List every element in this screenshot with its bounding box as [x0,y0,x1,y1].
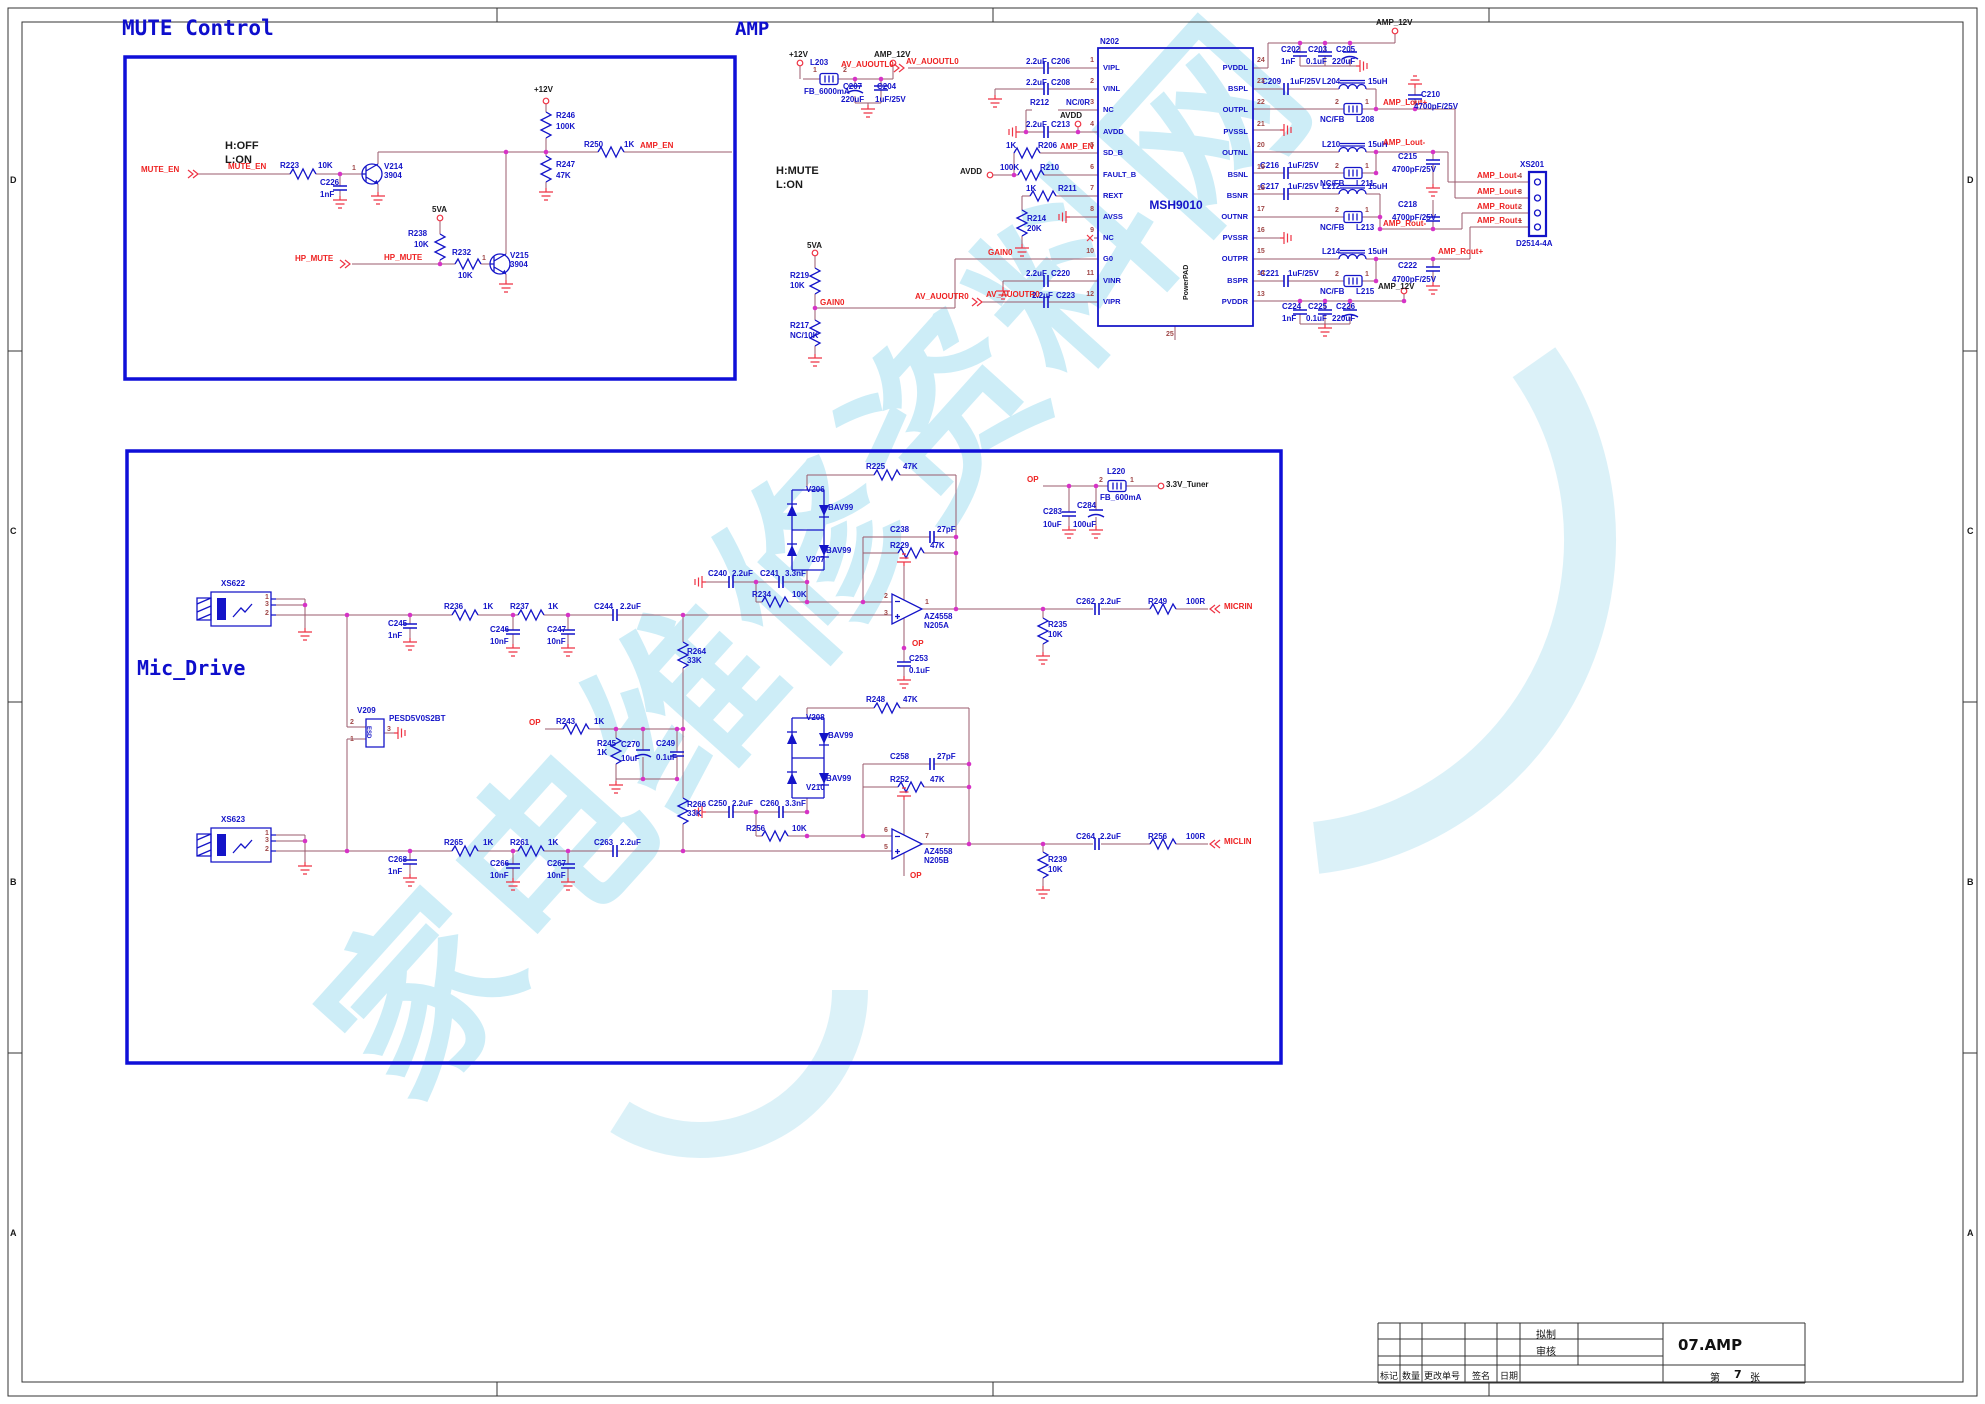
label-c246: C246 [490,626,509,634]
chip-pin-g0: G0 [1103,255,1113,263]
label-ncfb: NC/FB [1320,288,1344,296]
label-r232: R232 [452,249,471,257]
label-r265: R265 [444,839,463,847]
label-3.3nf: 3.3nF [785,800,806,808]
label-c241: C241 [760,570,779,578]
label-47k: 47K [930,542,945,550]
label-bav99: BAV99 [826,547,851,555]
label-1k: 1K [483,603,493,611]
label-10k: 10K [318,162,333,170]
label-az4558: AZ4558 [924,848,952,856]
label-hp_mute: HP_MUTE [295,255,333,263]
label-amp_12v: AMP_12V [1376,19,1412,27]
label-c249: C249 [656,740,675,748]
chip-pin-vinl: VINL [1103,85,1120,93]
label-c202: C202 [1281,46,1300,54]
chip-pin-num-20: 20 [1257,142,1265,149]
zone-right-D: D [1967,176,1974,185]
mute-section-title: MUTE Control [122,16,274,40]
label-c263: C263 [594,839,613,847]
label-1: 1 [482,255,486,262]
label-3.3v_tuner: 3.3V_Tuner [1166,481,1209,489]
label-2.2uf: 2.2uF [1026,121,1047,129]
chip-pin-num-7: 7 [1074,185,1094,192]
label-c226: C226 [320,179,339,187]
chip-pin-num-14: 14 [1257,270,1265,277]
label-c220: C220 [1051,270,1070,278]
label-2: 2 [265,846,269,853]
label-2.2uf: 2.2uF [1026,58,1047,66]
label-10k: 10K [1048,866,1063,874]
chip-pin-num-17: 17 [1257,206,1265,213]
label-2: 2 [350,719,354,726]
chip-pin-avdd: AVDD [1103,128,1124,136]
schematic-sheet: 家电维修资料网 [0,0,1985,1404]
label-hp_mute: HP_MUTE [384,254,422,262]
title-block-sign-label: 签名 [1472,1369,1490,1382]
label-10nf: 10nF [547,872,566,880]
label-c245: C245 [388,620,407,628]
label-avdd: AVDD [960,168,982,176]
chip-pin-bspl: BSPL [1163,85,1248,93]
label-100r: 100R [1186,833,1205,841]
label-r214: R214 [1027,215,1046,223]
label-1k: 1K [1006,142,1016,150]
chip-pin-nc: NC [1103,106,1114,114]
title-block-doc-title: 07.AMP [1678,1336,1742,1354]
label-r217: R217 [790,322,809,330]
label-v214: V214 [384,163,403,171]
label-1uf25v: 1uF/25V [1288,270,1319,278]
chip-pin-num-3: 3 [1074,99,1094,106]
label-5va: 5VA [807,242,822,250]
label-2: 2 [1335,99,1339,106]
label-op: OP [912,640,924,648]
label-1: 1 [350,736,354,743]
label-av_auoutl0: AV_AUOUTL0 [841,61,894,69]
chip-pin-num-11: 11 [1074,270,1094,277]
label-2.2uf: 2.2uF [732,570,753,578]
chip-pin-num-1: 1 [1074,57,1094,64]
label-1k: 1K [594,718,604,726]
zone-left-C: C [10,527,17,536]
label-1nf: 1nF [320,191,334,199]
chip-pin-rext: REXT [1103,192,1123,200]
label-hmute: H:MUTE [776,166,819,177]
label-amp_12v: AMP_12V [1378,283,1414,291]
chip-pin-num-16: 16 [1257,227,1265,234]
label-2.2uf: 2.2uF [1100,833,1121,841]
label-220uf: 220uF [841,96,864,104]
zone-right-C: C [1967,527,1974,536]
label-47k: 47K [930,776,945,784]
label-1uf25v: 1uF/25V [1288,183,1319,191]
label-220uf: 220uF [1332,315,1355,323]
label-10k: 10K [458,272,473,280]
label-l210: L210 [1322,141,1340,149]
label-c224: C224 [1282,303,1301,311]
label-r239: R239 [1048,856,1067,864]
chip-pin-num-24: 24 [1257,57,1265,64]
zone-left-A: A [10,1229,17,1238]
label-1: 1 [1365,271,1369,278]
label-c270: C270 [621,741,640,749]
label-2: 2 [1099,477,1103,484]
label-7: 7 [925,833,929,840]
label-100uf: 100uF [1073,521,1096,529]
label-c258: C258 [890,753,909,761]
label-esd: ESD [365,726,371,738]
chip-pin-num-19: 19 [1257,164,1265,171]
label-10nf: 10nF [547,638,566,646]
label-az4558: AZ4558 [924,613,952,621]
label-r210: R210 [1040,164,1059,172]
title-block-date-label: 日期 [1500,1369,1518,1382]
label-47k: 47K [556,172,571,180]
label-5va: 5VA [432,206,447,214]
label-miclin: MICLIN [1224,838,1252,846]
label-r212: R212 [1030,99,1049,107]
title-block-change-label: 更改单号 [1424,1369,1460,1382]
label-0.1uf: 0.1uF [1306,315,1327,323]
label-v215: V215 [510,252,529,260]
label-r246: R246 [556,112,575,120]
label-0.1uf: 0.1uF [1306,58,1327,66]
label-r248: R248 [866,696,885,704]
label-33k: 33K [687,657,702,665]
title-block-draft-label: 拟制 [1536,1326,1556,1341]
label-c223: C223 [1056,292,1075,300]
label-27pf: 27pF [937,753,956,761]
label-amp_12v: AMP_12V [874,51,910,59]
label-33k: 33K [687,810,702,818]
chip-pin-avss: AVSS [1103,213,1123,221]
chip-pin-num-23: 23 [1257,78,1265,85]
xs201-part: D2514-4A [1516,240,1552,248]
label-gain0: GAIN0 [820,299,844,307]
label-fb_600ma: FB_600mA [1100,494,1141,502]
label-220uf: 220uF [1332,58,1355,66]
label-l203: L203 [810,59,828,67]
label-1uf25v: 1uF/25V [875,96,906,104]
chip-pin-outnr: OUTNR [1163,213,1248,221]
label-c284: C284 [1077,502,1096,510]
chip-pin-num-5: 5 [1074,142,1094,149]
label-l214: L214 [1322,248,1340,256]
zone-right-A: A [1967,1229,1974,1238]
label-c244: C244 [594,603,613,611]
title-block-sheet-number: 7 [1734,1368,1742,1381]
label-v209: V209 [357,707,376,715]
label-l213: L213 [1356,224,1374,232]
label-av_auoutl0: AV_AUOUTL0 [906,58,959,66]
label-c262: C262 [1076,598,1095,606]
label-v210: V210 [806,784,825,792]
label-op: OP [910,872,922,880]
zone-right-B: B [1967,878,1974,887]
label-mute_en: MUTE_EN [141,166,179,174]
chip-pin-fault_b: FAULT_B [1103,171,1136,179]
chip-pin-bsnr: BSNR [1163,192,1248,200]
label-1: 1 [1130,477,1134,484]
label-r256: R256 [746,825,765,833]
label-47k: 47K [903,463,918,471]
label-c253: C253 [909,655,928,663]
label-1nf: 1nF [388,868,402,876]
label-c206: C206 [1051,58,1070,66]
chip-pin-outpl: OUTPL [1163,106,1248,114]
label-2: 2 [1335,163,1339,170]
label-av_auoutr0: AV_AUOUTR0 [915,293,969,301]
label-v208: V208 [806,714,825,722]
label-2.2uf: 2.2uF [1032,292,1053,300]
label-1nf: 1nF [1282,315,1296,323]
label-2: 2 [1335,207,1339,214]
label-xs622: XS622 [221,580,245,588]
label-c215: C215 [1398,153,1417,161]
xs201-pin-3: 3 [1512,189,1522,196]
label-c222: C222 [1398,262,1417,270]
chip-ref: N202 [1100,38,1119,46]
label-100r: 100R [1186,598,1205,606]
label-0.1uf: 0.1uF [909,667,930,675]
label-r243: R243 [556,718,575,726]
label-l208: L208 [1356,116,1374,124]
label-r223: R223 [280,162,299,170]
chip-pin-sd_b: SD_B [1103,149,1123,157]
label-c240: C240 [708,570,727,578]
label-+12v: +12V [789,51,808,59]
chip-pin-bsnl: BSNL [1163,171,1248,179]
chip-pin-num-9: 9 [1074,227,1094,234]
label-l215: L215 [1356,288,1374,296]
label-1k: 1K [548,603,558,611]
title-block-sheet-prefix: 第 [1710,1369,1720,1384]
chip-pin-bspr: BSPR [1163,277,1248,285]
label-15uh: 15uH [1368,248,1388,256]
label-r250: R250 [584,141,603,149]
chip-pin-num-4: 4 [1074,121,1094,128]
chip-pin-num-18: 18 [1257,185,1265,192]
label-2: 2 [884,593,888,600]
label-c210: C210 [1421,91,1440,99]
label-10k: 10K [792,591,807,599]
xs201-pin-4: 4 [1512,173,1522,180]
xs201-pin-1: 1 [1512,218,1522,225]
label-c260: C260 [760,800,779,808]
label-3904: 3904 [510,261,528,269]
label-1: 1 [813,67,817,74]
label-4700pf25v: 4700pF/25V [1392,166,1436,174]
chip-pin-vipl: VIPL [1103,64,1120,72]
label-c266: C266 [490,860,509,868]
chip-pin-num-15: 15 [1257,248,1265,255]
chip-pin-pvssr: PVSSR [1163,234,1248,242]
label-lon: L:ON [776,180,803,191]
label-1k: 1K [483,839,493,847]
label-1: 1 [352,165,356,172]
label-v206: V206 [806,486,825,494]
chip-pin-vipr: VIPR [1103,298,1121,306]
label-100k: 100K [1000,164,1019,172]
label-3: 3 [265,837,269,844]
label-op: OP [1027,476,1039,484]
label-bav99: BAV99 [828,504,853,512]
label-avdd: AVDD [1060,112,1082,120]
label-r234: R234 [752,591,771,599]
label-10k: 10K [792,825,807,833]
label-r237: R237 [510,603,529,611]
label-r252: R252 [890,776,909,784]
label-l204: L204 [1322,78,1340,86]
label-1: 1 [1365,207,1369,214]
label-amp_lout-: AMP_Lout- [1383,139,1425,147]
label-0.1uf: 0.1uF [656,754,677,762]
label-r235: R235 [1048,621,1067,629]
label-2: 2 [1335,271,1339,278]
label-hoff: H:OFF [225,141,259,152]
chip-pin-num-21: 21 [1257,121,1265,128]
label-1uf25v: 1uF/25V [1288,162,1319,170]
label-1k: 1K [548,839,558,847]
label-l212: L212 [1322,183,1340,191]
label-2.2uf: 2.2uF [620,603,641,611]
chip-pin-nc: NC [1103,234,1114,242]
label-mute_en: MUTE_EN [228,163,266,171]
label-1nf: 1nF [388,632,402,640]
label-20k: 20K [1027,225,1042,233]
label-c204: C204 [877,83,896,91]
label-10k: 10K [414,241,429,249]
label-nc10k: NC/10K [790,332,818,340]
title-block-qty-label: 数量 [1402,1369,1420,1382]
label-c247: C247 [547,626,566,634]
label-ncfb: NC/FB [1320,224,1344,232]
label-1: 1 [265,830,269,837]
labels-layer: H:OFFL:ONMUTE_ENMUTE_ENR22310KC2261nFV21… [0,0,1985,1404]
label-27pf: 27pF [937,526,956,534]
label-2.2uf: 2.2uF [732,800,753,808]
xs201-pin-2: 2 [1512,204,1522,211]
label-c250: C250 [708,800,727,808]
chip-pin-outpr: OUTPR [1163,255,1248,263]
label-bav99: BAV99 [828,732,853,740]
label-10k: 10K [1048,631,1063,639]
label-gain0: GAIN0 [988,249,1012,257]
label-+12v: +12V [534,86,553,94]
label-15uh: 15uH [1368,183,1388,191]
label-c267: C267 [547,860,566,868]
label-r229: R229 [890,542,909,550]
label-3.3nf: 3.3nF [785,570,806,578]
chip-pin-num-8: 8 [1074,206,1094,213]
label-10nf: 10nF [490,872,509,880]
label-3: 3 [884,610,888,617]
chip-pin-vinr: VINR [1103,277,1121,285]
label-6: 6 [884,827,888,834]
label-1k: 1K [624,141,634,149]
label-10k: 10K [790,282,805,290]
chip-pin-25: 25 [1166,331,1174,338]
label-10uf: 10uF [1043,521,1062,529]
label-10uf: 10uF [621,755,640,763]
label-10nf: 10nF [490,638,509,646]
label-3: 3 [387,726,391,733]
label-47k: 47K [903,696,918,704]
label-r264: R264 [687,648,706,656]
label-xs623: XS623 [221,816,245,824]
label-c208: C208 [1051,79,1070,87]
chip-pin-num-13: 13 [1257,291,1265,298]
label-15uh: 15uH [1368,78,1388,86]
label-2.2uf: 2.2uF [1100,598,1121,606]
chip-part-name: MSH9010 [1126,199,1226,211]
label-r249: R249 [1148,598,1167,606]
chip-pin-outnl: OUTNL [1163,149,1248,157]
label-ncfb: NC/FB [1320,116,1344,124]
label-c207: C207 [843,83,862,91]
label-c226: C226 [1336,303,1355,311]
label-micrin: MICRIN [1224,603,1252,611]
label-c225: C225 [1308,303,1327,311]
chip-pin-pvddl: PVDDL [1163,64,1248,72]
label-r247: R247 [556,161,575,169]
zone-left-B: B [10,878,17,887]
xs201-ref: XS201 [1520,161,1544,169]
label-c283: C283 [1043,508,1062,516]
label-c264: C264 [1076,833,1095,841]
amp-section-title: AMP [735,18,769,40]
chip-pin-num-2: 2 [1074,78,1094,85]
mic-section-title: Mic_Drive [137,656,245,680]
label-1: 1 [1365,99,1369,106]
chip-pin-num-6: 6 [1074,164,1094,171]
label-r225: R225 [866,463,885,471]
label-bav99: BAV99 [826,775,851,783]
label-1uf25v: 1uF/25V [1290,78,1321,86]
chip-pin-num-22: 22 [1257,99,1265,106]
label-1: 1 [1365,163,1369,170]
chip-pin-num-12: 12 [1074,291,1094,298]
label-r245: R245 [597,740,616,748]
label-c238: C238 [890,526,909,534]
label-4700pf25v: 4700pF/25V [1414,103,1458,111]
label-r219: R219 [790,272,809,280]
title-block-review-label: 审核 [1536,1343,1556,1358]
label-2.2uf: 2.2uF [1026,79,1047,87]
label-2: 2 [265,610,269,617]
label-c268: C268 [388,856,407,864]
label-r266: R266 [687,801,706,809]
label-r206: R206 [1038,142,1057,150]
label-1k: 1K [597,749,607,757]
label-3904: 3904 [384,172,402,180]
chip-pin-num-10: 10 [1074,248,1094,255]
label-amp_rout-: AMP_Rout- [1383,220,1426,228]
label-1: 1 [265,594,269,601]
label-r236: R236 [444,603,463,611]
label-5: 5 [884,844,888,851]
zone-left-D: D [10,176,17,185]
label-op: OP [529,719,541,727]
label-l220: L220 [1107,468,1125,476]
label-r238: R238 [408,230,427,238]
label-amp_rout+: AMP_Rout+ [1438,248,1483,256]
chip-pin-pvssl: PVSSL [1163,128,1248,136]
label-r261: R261 [510,839,529,847]
label-r256: R256 [1148,833,1167,841]
label-2.2uf: 2.2uF [1026,270,1047,278]
